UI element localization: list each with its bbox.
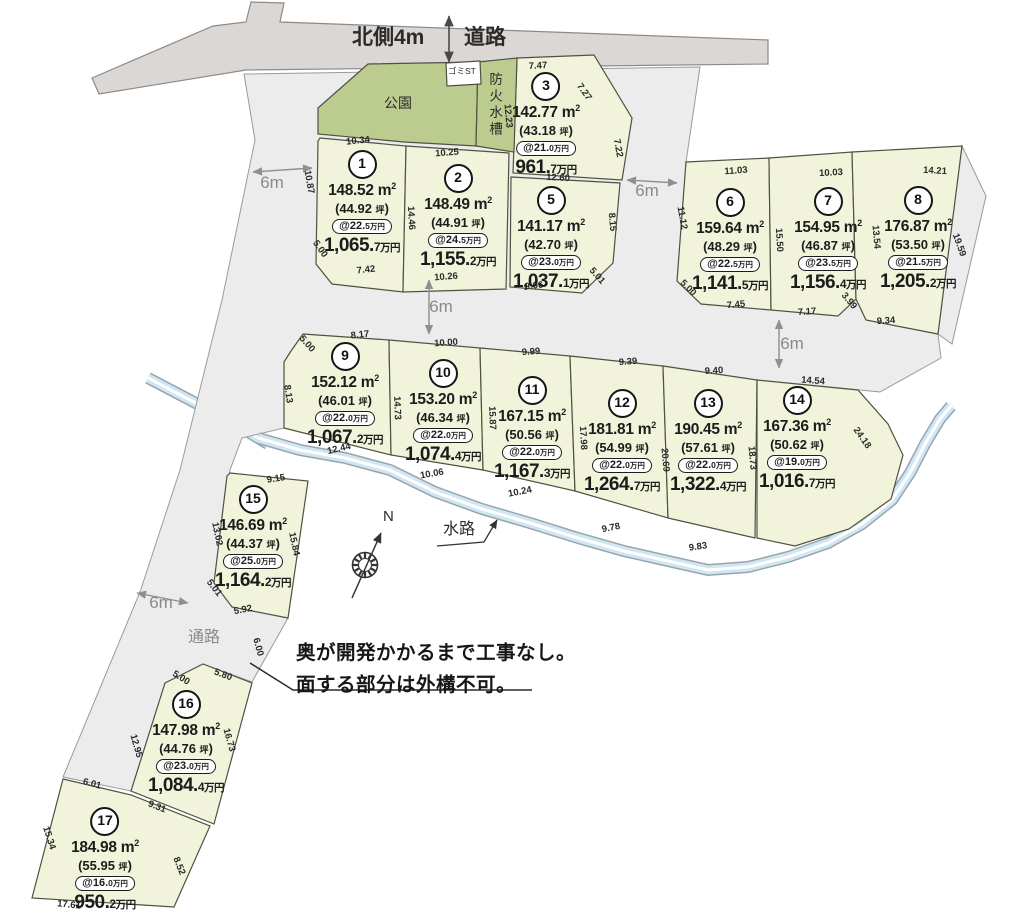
- dimension-label: 7.45: [726, 299, 745, 312]
- lot-number: 10: [428, 359, 457, 388]
- lot-total-price: 1,156.4万円: [790, 272, 866, 294]
- lot-unit-price: @22.0万円: [678, 458, 738, 473]
- lot-area-sqm: 142.77 m2: [512, 103, 580, 122]
- lot-unit-price: @23.0万円: [156, 759, 216, 774]
- lot-total-price: 1,205.2万円: [880, 271, 956, 293]
- lot-unit-price: @22.0万円: [315, 411, 375, 426]
- lot-card-16: 16147.98 m2(44.76 坪)@23.0万円1,084.4万円: [148, 690, 224, 797]
- lot-area-sqm: 146.69 m2: [215, 516, 291, 535]
- lot-total-price: 1,084.4万円: [148, 775, 224, 797]
- lot-card-10: 10153.20 m2(46.34 坪)@22.0万円1,074.4万円: [405, 359, 481, 466]
- lot-total-price: 1,167.3万円: [494, 461, 570, 483]
- lot-unit-price: @22.0万円: [502, 445, 562, 460]
- lot-total-price: 1,141.5万円: [692, 273, 768, 295]
- lot-card-9: 9152.12 m2(46.01 坪)@22.0万円1,067.2万円: [307, 342, 383, 449]
- lot-area-sqm: 148.52 m2: [324, 181, 400, 200]
- fire-tank-label: 防火水槽: [487, 72, 501, 138]
- road-width-label: 6m: [780, 334, 804, 354]
- lot-card-8: 8176.87 m2(53.50 坪)@21.5万円1,205.2万円: [880, 186, 956, 293]
- road-label: 道路: [464, 27, 506, 49]
- compass-tick: [359, 571, 362, 575]
- lot-number: 5: [536, 186, 565, 215]
- lot-total-price: 1,264.7万円: [584, 474, 660, 496]
- lot-card-3: 3142.77 m2(43.18 坪)@21.0万円961.7万円: [512, 72, 580, 179]
- lot-total-price: 1,155.2万円: [420, 249, 496, 271]
- lot-area-tsubo: (44.92 坪): [324, 201, 400, 216]
- lot-area-sqm: 148.49 m2: [420, 195, 496, 214]
- dimension-label: 10.03: [819, 167, 843, 179]
- lot-area-tsubo: (46.01 坪): [307, 393, 383, 408]
- compass-tick: [355, 569, 359, 572]
- lot-area-sqm: 152.12 m2: [307, 373, 383, 392]
- lot-area-tsubo: (53.50 坪): [880, 237, 956, 252]
- lot-area-tsubo: (44.37 坪): [215, 536, 291, 551]
- road-width-label: 6m: [635, 181, 659, 201]
- lot-total-price: 961.7万円: [512, 157, 580, 179]
- lot-area-tsubo: (48.29 坪): [692, 239, 768, 254]
- lot-area-sqm: 153.20 m2: [405, 390, 481, 409]
- compass-tick: [359, 555, 362, 559]
- lot-area-sqm: 167.36 m2: [759, 417, 835, 436]
- passage-label: 通路: [188, 630, 220, 647]
- lot-number: 2: [443, 164, 472, 193]
- note-line-1: 奥が開発かかるまで工事なし。: [296, 636, 576, 665]
- dimension-label: 18.73: [745, 446, 758, 471]
- dimension-label: 8.13: [281, 384, 294, 404]
- compass-tick: [369, 555, 372, 559]
- lot-area-tsubo: (54.99 坪): [584, 440, 660, 455]
- compass-north-label: N: [383, 509, 394, 525]
- dimension-label: 7.42: [356, 264, 376, 277]
- lot-number: 3: [531, 72, 560, 101]
- lot-area-sqm: 167.15 m2: [494, 407, 570, 426]
- lot-unit-price: @23.5万円: [798, 256, 858, 271]
- lot-area-sqm: 176.87 m2: [880, 217, 956, 236]
- lot-area-tsubo: (50.62 坪): [759, 437, 835, 452]
- lot-total-price: 1,067.2万円: [307, 427, 383, 449]
- garbage-station-label: ゴミST: [448, 67, 476, 76]
- lot-area-sqm: 159.64 m2: [692, 219, 768, 238]
- compass-tick: [369, 571, 372, 575]
- dimension-label: 14.21: [923, 165, 947, 177]
- lot-area-tsubo: (50.56 坪): [494, 427, 570, 442]
- lot-card-14: 14167.36 m2(50.62 坪)@19.0万円1,016.7万円: [759, 386, 835, 493]
- lot-unit-price: @16.0万円: [75, 876, 135, 891]
- dimension-label: 8.17: [350, 329, 370, 342]
- dimension-label: 9.39: [618, 356, 637, 368]
- waterway-label: 水路: [443, 522, 475, 539]
- lot-total-price: 1,016.7万円: [759, 471, 835, 493]
- lot-unit-price: @19.0万円: [767, 455, 827, 470]
- lot-card-5: 5141.17 m2(42.70 坪)@23.0万円1,037.1万円: [513, 186, 589, 293]
- dimension-label: 10.00: [434, 337, 458, 350]
- lot-card-15: 15146.69 m2(44.37 坪)@25.0万円1,164.2万円: [215, 485, 291, 592]
- lot-card-17: 17184.98 m2(55.95 坪)@16.0万円950.2万円: [71, 807, 139, 914]
- lot-area-sqm: 181.81 m2: [584, 420, 660, 439]
- lot-area-sqm: 190.45 m2: [670, 420, 746, 439]
- lot-area-tsubo: (46.87 坪): [790, 238, 866, 253]
- lot-unit-price: @23.0万円: [521, 255, 581, 270]
- lot-number: 9: [330, 342, 359, 371]
- lot-number: 8: [903, 186, 932, 215]
- dimension-label: 9.40: [704, 365, 723, 377]
- lot-card-6: 6159.64 m2(48.29 坪)@22.5万円1,141.5万円: [692, 188, 768, 295]
- compass-tick: [371, 569, 375, 572]
- lot-unit-price: @25.0万円: [223, 554, 283, 569]
- lot-unit-price: @22.0万円: [413, 428, 473, 443]
- dimension-label: 10.25: [435, 147, 459, 160]
- lot-unit-price: @21.0万円: [516, 141, 576, 156]
- lot-area-tsubo: (46.34 坪): [405, 410, 481, 425]
- dimension-label: 9.34: [876, 315, 895, 327]
- dimension-label: 14.46: [405, 206, 417, 230]
- lot-total-price: 1,164.2万円: [215, 570, 291, 592]
- lot-area-tsubo: (44.76 坪): [148, 741, 224, 756]
- lot-area-tsubo: (55.95 坪): [71, 858, 139, 873]
- lot-number: 12: [607, 389, 636, 418]
- lot-unit-price: @22.5万円: [332, 219, 392, 234]
- lot-unit-price: @24.5万円: [428, 233, 488, 248]
- lot-total-price: 1,322.4万円: [670, 474, 746, 496]
- lot-card-12: 12181.81 m2(54.99 坪)@22.0万円1,264.7万円: [584, 389, 660, 496]
- lot-number: 13: [693, 389, 722, 418]
- lot-unit-price: @21.5万円: [888, 255, 948, 270]
- park-label: 公園: [384, 96, 412, 111]
- dimension-label: 7.47: [528, 60, 547, 72]
- lot-area-tsubo: (43.18 坪): [512, 123, 580, 138]
- compass-tick: [355, 559, 359, 562]
- note-line-2: 面する部分は外構不可。: [296, 668, 516, 697]
- lot-unit-price: @22.0万円: [592, 458, 652, 473]
- lot-card-2: 2148.49 m2(44.91 坪)@24.5万円1,155.2万円: [420, 164, 496, 271]
- lot-area-sqm: 154.95 m2: [790, 218, 866, 237]
- dimension-label: 7.17: [797, 306, 816, 318]
- dimension-label: 11.03: [724, 165, 748, 178]
- lot-number: 11: [517, 376, 546, 405]
- lot-area-sqm: 141.17 m2: [513, 217, 589, 236]
- dimension-label: 9.99: [521, 346, 540, 358]
- road-width-label: 6m: [260, 173, 284, 193]
- lot-card-1: 1148.52 m2(44.92 坪)@22.5万円1,065.7万円: [324, 150, 400, 257]
- lot-number: 7: [813, 187, 842, 216]
- dimension-label: 14.73: [391, 396, 403, 420]
- lot-total-price: 1,065.7万円: [324, 235, 400, 257]
- dimension-label: 10.26: [434, 271, 458, 284]
- lot-card-7: 7154.95 m2(46.87 坪)@23.5万円1,156.4万円: [790, 187, 866, 294]
- lot-area-tsubo: (44.91 坪): [420, 215, 496, 230]
- dimension-label: 15.50: [773, 228, 785, 252]
- lot-total-price: 1,074.4万円: [405, 444, 481, 466]
- north-road-label: 北側4m: [352, 27, 424, 49]
- lot-total-price: 1,037.1万円: [513, 271, 589, 293]
- compass-rose-icon: [352, 533, 381, 598]
- compass-tick: [371, 559, 375, 562]
- lot-area-sqm: 184.98 m2: [71, 838, 139, 857]
- lot-number: 15: [238, 485, 267, 514]
- road-width-label: 6m: [149, 593, 173, 613]
- lot-number: 6: [715, 188, 744, 217]
- lot-number: 17: [90, 807, 119, 836]
- dimension-label: 8.15: [606, 212, 619, 231]
- lot-number: 16: [171, 690, 200, 719]
- lot-number: 1: [347, 150, 376, 179]
- road-width-label: 6m: [429, 297, 453, 317]
- lot-card-11: 11167.15 m2(50.56 坪)@22.0万円1,167.3万円: [494, 376, 570, 483]
- lot-card-13: 13190.45 m2(57.61 坪)@22.0万円1,322.4万円: [670, 389, 746, 496]
- site-plan-map: 北側4m 道路 公園 ゴミST 防火水槽 水路 通路 N 奥が開発かかるまで工事…: [0, 0, 1024, 922]
- lot-area-tsubo: (42.70 坪): [513, 237, 589, 252]
- lot-area-tsubo: (57.61 坪): [670, 440, 746, 455]
- lot-number: 14: [782, 386, 811, 415]
- lot-area-sqm: 147.98 m2: [148, 721, 224, 740]
- lot-unit-price: @22.5万円: [700, 257, 760, 272]
- lot-total-price: 950.2万円: [71, 892, 139, 914]
